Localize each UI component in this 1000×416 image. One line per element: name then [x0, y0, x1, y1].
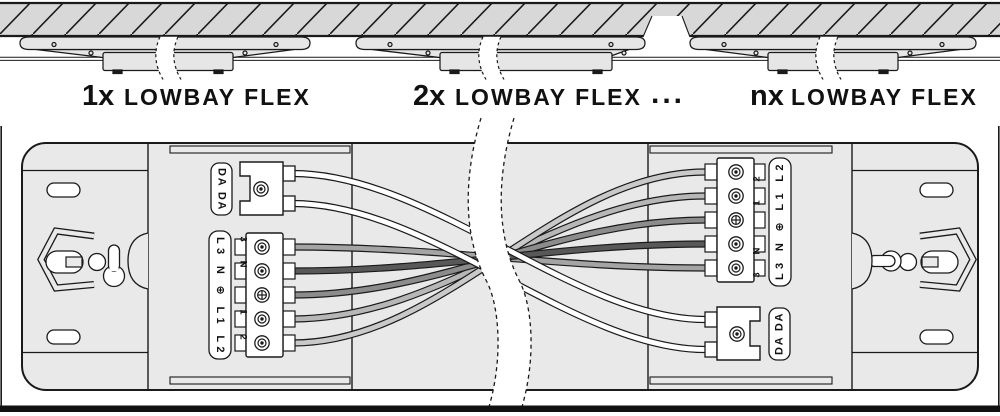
terminal-screw-2: [729, 165, 743, 179]
qty-label-nx: nx: [750, 80, 784, 112]
bracket-tongue: [66, 257, 82, 267]
dali-plate-label: DA DA: [216, 168, 228, 210]
left-power-label-plate: L3 N ⊕ L1 L2: [209, 231, 231, 359]
terminal-screw-n: [729, 237, 743, 251]
mounting-hole-icon: [89, 254, 106, 271]
screw-dot: [388, 43, 392, 47]
right-power-label-plate: L3 N ⊕ L1 L2: [769, 158, 791, 286]
qty-label-1x: 1x: [82, 80, 114, 112]
terminal-number: 1: [238, 309, 249, 315]
dali-terminal-screw: [730, 327, 744, 341]
mounting-slot-icon: [47, 183, 80, 197]
terminal-number: N: [752, 247, 763, 254]
screw-dot: [52, 43, 56, 47]
terminal-screw-1: [729, 189, 743, 203]
gear-tray-lip: [650, 146, 832, 153]
gear-tray-lip: [170, 146, 350, 153]
terminal-number: 3: [752, 272, 763, 277]
mounting-slot-icon: [920, 330, 953, 344]
screw-dot: [722, 43, 726, 47]
terminal-number: 2: [752, 176, 763, 181]
gear-tray-lip: [650, 377, 832, 384]
left-dali-label-plate: DA DA: [211, 163, 232, 215]
qty-label-2x: 2x: [413, 80, 445, 112]
product-label-2: LOWBAY FLEX: [455, 84, 642, 110]
screw-dot: [622, 51, 626, 55]
gear-tray-lip: [170, 377, 350, 384]
screw-dot: [754, 51, 758, 55]
ceiling-section: [0, 2, 1000, 38]
screw-dot: [243, 51, 247, 55]
left-power-connector: 3 N 1 2: [235, 233, 295, 357]
terminal-screw-1: [255, 312, 269, 326]
terminal-number: 3: [238, 236, 249, 241]
mounting-slot-icon: [920, 183, 953, 197]
terminal-number: N: [238, 261, 249, 268]
screw-dot: [89, 51, 93, 55]
power-plate-label: L3 N ⊕ L1 L2: [774, 164, 786, 280]
label-row: 1x LOWBAY FLEX 2x LOWBAY FLEX ... nx LOW…: [82, 77, 978, 112]
terminal-screw-n: [255, 264, 269, 278]
right-power-connector: 2 1 N 3: [705, 158, 765, 282]
product-label-1: LOWBAY FLEX: [124, 84, 311, 110]
dali-plate-label: DA DA: [774, 313, 786, 355]
mounting-slot-icon: [47, 330, 80, 344]
right-dali-label-plate: DA DA: [769, 308, 790, 360]
terminal-screw-3: [255, 240, 269, 254]
fixture-gearbox: [440, 53, 612, 71]
power-plate-label: L3 N ⊕ L1 L2: [214, 237, 226, 353]
installation-diagram: 1x LOWBAY FLEX 2x LOWBAY FLEX ... nx LOW…: [0, 0, 1000, 416]
terminal-screw-3: [729, 261, 743, 275]
ceiling-hatch-icon: [0, 2, 1000, 36]
dali-terminal-screw: [254, 182, 268, 196]
installation-diagram-page: 1x LOWBAY FLEX 2x LOWBAY FLEX ... nx LOW…: [0, 0, 1000, 416]
ellipsis-label: ...: [651, 77, 685, 110]
terminal-number: 1: [752, 200, 763, 206]
screw-dot: [274, 43, 278, 47]
bracket-tongue: [922, 257, 938, 267]
earth-terminal-icon: [255, 288, 269, 302]
bottom-border-bar: [0, 406, 1000, 413]
mounting-hole-icon: [900, 254, 917, 271]
earth-terminal-icon: [729, 213, 743, 227]
fixture-profile-2: [356, 37, 645, 74]
screw-dot: [426, 51, 430, 55]
product-label-n: LOWBAY FLEX: [791, 84, 978, 110]
terminal-number: 2: [238, 334, 249, 339]
screw-dot: [908, 51, 912, 55]
terminal-screw-2: [255, 336, 269, 350]
screw-dot: [940, 43, 944, 47]
screw-dot: [609, 43, 613, 47]
